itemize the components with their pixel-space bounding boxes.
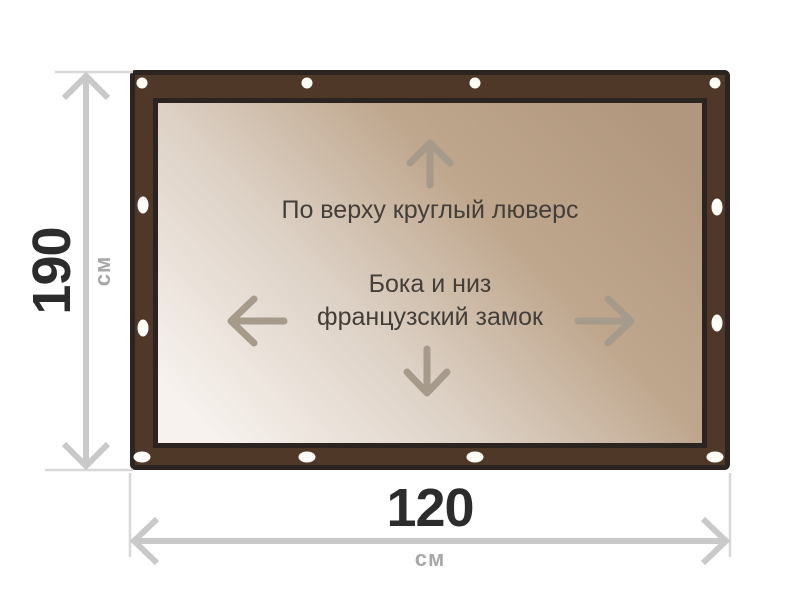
grommet-icon [134, 452, 151, 463]
grommet-icon [299, 452, 316, 463]
grommet-icon [707, 452, 724, 463]
grommet-icon [712, 199, 723, 216]
top-edge-note: По верху круглый люверс [190, 196, 670, 225]
grommet-icon [467, 452, 484, 463]
grommet-icon [470, 78, 481, 89]
product-diagram: По верху круглый люверс Бока и низ франц… [0, 0, 800, 600]
grommet-icon [712, 315, 723, 332]
grommet-icon [137, 78, 148, 89]
grommet-icon [710, 78, 721, 89]
grommet-icon [138, 197, 149, 214]
grommet-icon [138, 320, 149, 337]
sides-note-line1: Бока и низ [230, 268, 630, 301]
height-value-label: 190 [24, 201, 80, 341]
sides-note-line2: французский замок [230, 301, 630, 334]
width-value-label: 120 [330, 481, 530, 535]
height-unit-label: см [91, 241, 115, 301]
grommet-icon [302, 78, 313, 89]
width-unit-label: см [380, 546, 480, 572]
sides-note: Бока и низ французский замок [230, 268, 630, 334]
